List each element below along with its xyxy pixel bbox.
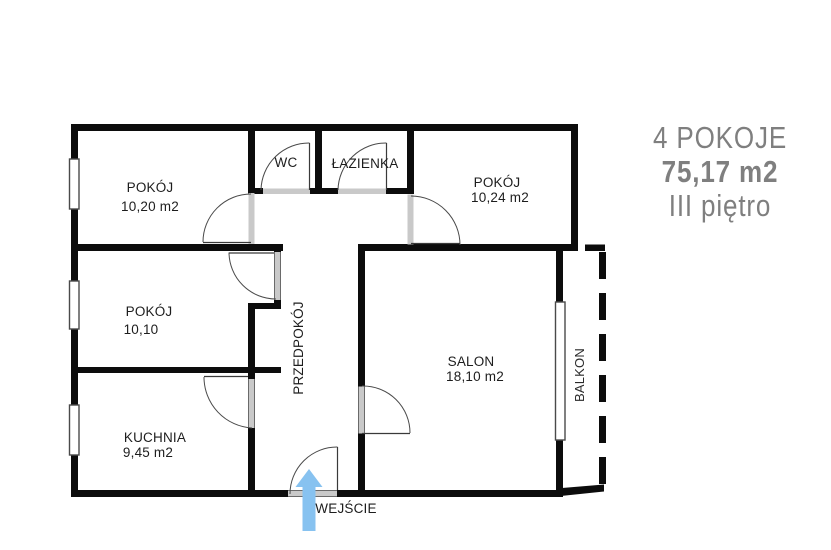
- room-label-wc: WC: [275, 155, 298, 170]
- window-salon: [556, 302, 566, 440]
- room-label-pokoj-mid-left: POKÓJ: [126, 304, 173, 319]
- room-label-lazienka: ŁAZIENKA: [332, 156, 399, 171]
- doorway-pokoj-top-left: [249, 193, 255, 244]
- room-area-pokoj-top-right: 10,24 m2: [471, 190, 529, 205]
- room-area-pokoj-mid-left: 10,10: [124, 322, 159, 337]
- door-arc-pokoj-top-left: [203, 194, 251, 242]
- room-label-balkon: BALKON: [572, 348, 587, 402]
- room-area-kuchnia: 9,45 m2: [123, 445, 173, 460]
- doorway-salon: [359, 387, 365, 434]
- wall-outer-right-upper: [571, 124, 578, 251]
- window-pokoj-mid-left: [70, 281, 80, 329]
- wall-pokoj-divider-horizontal: [71, 244, 283, 251]
- wall-wc-bath-divider: [315, 124, 322, 194]
- door-arc-pokoj-mid-left: [229, 253, 276, 300]
- entrance-arrow-icon: [296, 469, 323, 531]
- floor-plan: POKÓJ 10,20 m2 WC ŁAZIENKA POKÓJ 10,24 m…: [0, 0, 831, 550]
- room-label-przedpokoj: PRZEDPOKÓJ: [291, 301, 306, 395]
- floor-plan-page: POKÓJ 10,20 m2 WC ŁAZIENKA POKÓJ 10,24 m…: [0, 0, 831, 550]
- entrance-label: WEJŚCIE: [315, 501, 376, 516]
- room-label-salon: SALON: [448, 354, 495, 369]
- window-pokoj-top-left: [70, 159, 80, 209]
- room-label-kuchnia: KUCHNIA: [124, 430, 186, 445]
- door-openings: [249, 189, 414, 497]
- room-area-salon: 18,10 m2: [446, 369, 504, 384]
- wall-salon-top: [358, 244, 578, 251]
- total-area: 75,17 m2: [644, 155, 795, 189]
- balcony-boundary: [585, 245, 605, 487]
- doorway-wc: [263, 189, 310, 195]
- doorway-pokoj-top-right: [408, 195, 414, 245]
- wall-hall-left-lower: [248, 303, 255, 373]
- wall-outer-top: [71, 124, 578, 131]
- room-labels: POKÓJ 10,20 m2 WC ŁAZIENKA POKÓJ 10,24 m…: [121, 155, 587, 516]
- listing-summary: 4 POKOJE 75,17 m2 III piętro: [644, 121, 795, 223]
- window-kuchnia: [70, 405, 80, 455]
- wall-wc-left: [248, 124, 255, 192]
- room-label-pokoj-top-right: POKÓJ: [474, 175, 521, 190]
- room-label-pokoj-top-left: POKÓJ: [127, 180, 174, 195]
- wall-bath-right: [407, 124, 414, 194]
- doorway-lazienka: [338, 189, 386, 195]
- wall-outer-bottom-right-extension: [556, 485, 604, 497]
- wall-salon-left: [358, 244, 365, 497]
- balcony-dash-top-stub: [585, 245, 605, 252]
- door-arc-salon: [362, 386, 410, 433]
- door-arc-pokoj-top-right: [411, 196, 460, 245]
- door-arc-kuchnia: [204, 377, 252, 428]
- rooms-count: 4 POKOJE: [644, 121, 795, 155]
- room-area-pokoj-top-left: 10,20 m2: [121, 199, 179, 214]
- wall-wc-bottom-b: [310, 188, 338, 194]
- doorway-kuchnia: [249, 379, 255, 428]
- door-swings: [203, 143, 460, 494]
- floor-level: III piętro: [644, 189, 795, 223]
- doorway-pokoj-mid-left: [275, 252, 281, 300]
